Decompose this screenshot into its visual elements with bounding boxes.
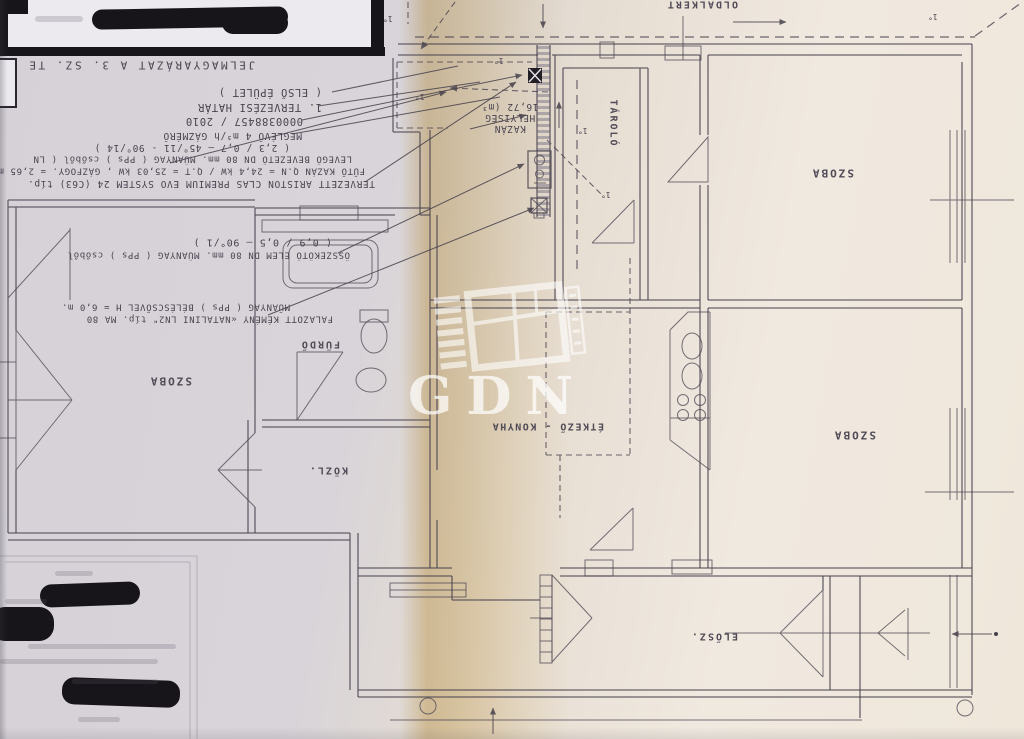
- legend-line: ÖSSZEKÖTŐ ELEM DN 80 mm. MŰANYAG ( PPs )…: [0, 249, 350, 259]
- legend-line: MŰANYAG ( PPs ) BÉLÉSCSŐVEL H = 6,0 m.: [0, 301, 290, 311]
- page-edge-shadow-left: [0, 0, 7, 739]
- redaction-blob-2: [0, 607, 54, 641]
- legend-line: LEVEGŐ BEVEZETŐ DN 80 mm. MŰANYAG ( PPs …: [0, 153, 352, 163]
- legend-frame-right: [371, 0, 384, 56]
- room-label-szoba-top-right: SZOBA: [792, 166, 854, 179]
- room-label-szoba-bottom-right: SZOBA: [814, 428, 876, 441]
- degree-mark: 1°: [383, 14, 393, 23]
- room-label-furdo: FÜRDŐ: [284, 338, 340, 350]
- legend-line: ( 0,9 / 0,5 – 90°/1 ): [186, 236, 332, 248]
- site-label-oldalkert: OLDALKERT: [634, 0, 738, 10]
- faint-text-smudge: [78, 717, 120, 722]
- degree-mark: 1°: [601, 190, 611, 199]
- legend-line: ( 2,3 / 0,7 – 45°/11 - 90°/14 ): [62, 141, 290, 152]
- legend-line: FŰTŐ KAZÁN Q.N = 24,4 kW / Q.T = 25,03 k…: [0, 165, 365, 175]
- legend-line: 0000388457 / 2010: [143, 115, 303, 127]
- page-edge-shadow-bottom: [0, 727, 1024, 739]
- legend-line: MEGLÉVŐ 4 m³/h GÁZMÉRŐ: [106, 129, 302, 140]
- redaction-blob-top2: [222, 12, 288, 34]
- legend-line: TERVEZETT ARISTON CLAS PREMIUM EVO SYSTE…: [0, 177, 375, 188]
- room-label-elosz: ELŐSZ.: [676, 630, 738, 642]
- degree-mark: 1°: [494, 56, 504, 65]
- faint-text-smudge: [0, 659, 158, 664]
- room-label-kozl: KÖZL.: [296, 464, 348, 476]
- degree-mark: 1°: [578, 126, 588, 135]
- room-label-szoba-left: SZOBA: [130, 374, 192, 387]
- degree-mark: 1°: [928, 12, 938, 21]
- legend-line: ( ELSŐ ÉPÜLET ): [210, 86, 322, 98]
- faint-stamp-smudge: [35, 16, 83, 22]
- degree-mark: 1°: [415, 92, 425, 101]
- legend-frame-bottom: [0, 47, 385, 56]
- room-label-tarolo: TÁROLÓ: [608, 89, 619, 159]
- faint-text-smudge: [72, 679, 158, 684]
- legend-line: FALAZOTT KÉMÉNY «NATALINI LN2" típ. MA 8…: [0, 313, 333, 323]
- scanned-floorplan-photo: { "colors": { "paper_left": "#d8d4d9", "…: [0, 0, 1024, 739]
- faint-text-smudge: [5, 599, 47, 604]
- redaction-blob-1: [40, 581, 141, 607]
- legend-title: JELMAGYARÁZAT A 3. SZ. TE: [30, 58, 255, 71]
- faint-text-smudge: [55, 571, 93, 576]
- boiler-room-label: KAZÁN HELYISÉG 16,72 (m³: [458, 100, 562, 133]
- legend-line: 1. TERVEZÉSI HATÁR: [172, 101, 322, 113]
- faint-text-smudge: [28, 644, 176, 649]
- watermark-text: GDN: [408, 366, 608, 427]
- site-lines: [408, 2, 1021, 60]
